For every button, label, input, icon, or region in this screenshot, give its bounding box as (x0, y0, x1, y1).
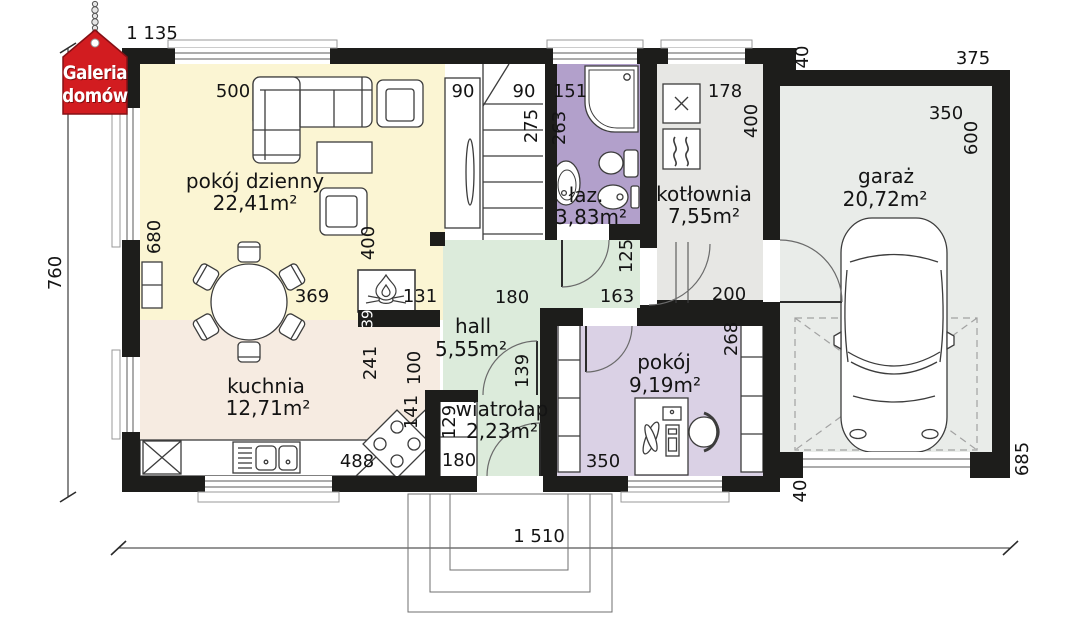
washer-unit (663, 84, 700, 123)
room-name-hall: hall (455, 316, 491, 336)
dim-bedroom-height: 268 (723, 322, 741, 356)
entrance-door-gap (477, 476, 543, 492)
logo-hole (91, 39, 99, 47)
room-name-kitchen: kuchnia (227, 376, 305, 396)
bedroom-door-gap (583, 308, 637, 326)
dim-living-left: 680 (146, 220, 164, 254)
desk (635, 398, 688, 475)
dim-counter: 488 (340, 453, 374, 471)
boiler-unit (663, 129, 700, 169)
logo-line2: domów (62, 85, 128, 107)
coffee-table (317, 142, 372, 173)
dim-left-total: 760 (47, 256, 65, 290)
wall-bath-right (640, 48, 657, 252)
dim-kitchen-passage: 100 (406, 351, 424, 385)
dim-closet-width: 90 (452, 83, 475, 101)
shower (585, 66, 638, 132)
dim-living-right: 400 (360, 226, 378, 260)
dim-boiler-passage: 200 (712, 286, 746, 304)
floor-plan-canvas: Galeria domów pokój dzienny 22,41m² kuch… (0, 0, 1079, 642)
dim-hall-opening: 180 (495, 289, 529, 307)
fridge-icon (143, 441, 181, 474)
dim-kitchen-height: 241 (362, 346, 380, 380)
dim-vest-closet-depth: 129 (441, 405, 459, 439)
side-cabinet (142, 262, 162, 308)
dim-garage-wall-top: 40 (794, 46, 812, 69)
room-name-boiler: kotłownia (656, 184, 752, 204)
bedroom-wardrobe-left (558, 322, 580, 472)
dim-fireplace: 131 (403, 288, 437, 306)
room-area-kitchen: 12,71m² (226, 398, 311, 418)
dim-vest-closet-width: 180 (442, 452, 476, 470)
armchair-top (377, 80, 423, 127)
room-area-bathroom: 3,83m² (555, 207, 627, 227)
dim-garage-wall-bottom: 40 (792, 480, 810, 503)
garage-door-gap (763, 240, 780, 302)
room-name-vestibule: wiatrołap (456, 399, 549, 419)
dim-boiler-width: 178 (708, 83, 742, 101)
room-area-garage: 20,72m² (843, 189, 928, 209)
wall-hall-stub (430, 232, 445, 246)
room-name-living: pokój dzienny (186, 171, 324, 191)
logo-line1: Galeria (63, 62, 127, 84)
room-name-bathroom: łaz. (569, 185, 604, 205)
room-area-living: 22,41m² (213, 193, 298, 213)
bedroom-wardrobe-right (741, 318, 763, 472)
dim-stairs-depth: 275 (523, 109, 541, 143)
wall-bedroom-top (540, 308, 780, 326)
dim-bedroom-width: 350 (586, 453, 620, 471)
dim-top-left-width: 1 135 (126, 25, 178, 43)
dim-bath-width: 151 (553, 83, 587, 101)
dining-table (211, 264, 287, 340)
dim-boiler-height: 400 (743, 104, 761, 138)
dim-sofa-wall: 500 (216, 83, 250, 101)
room-name-bedroom: pokój (637, 352, 691, 372)
dim-garage-inner-width: 350 (929, 105, 963, 123)
wall-right (992, 70, 1010, 478)
room-name-garage: garaż (858, 166, 914, 186)
room-area-boiler: 7,55m² (668, 206, 740, 226)
dim-bottom-total: 1 510 (513, 528, 565, 546)
dim-table: 369 (295, 288, 329, 306)
wall-garage-top (763, 70, 1010, 86)
dim-fireplace-wall: 39 (361, 309, 376, 328)
room-area-hall: 5,55m² (435, 339, 507, 359)
garage-gate-opening (803, 452, 970, 478)
dim-garage-inner-height: 600 (963, 121, 981, 155)
boiler-door-gap (640, 248, 657, 305)
dim-hall-width: 163 (600, 288, 634, 306)
dim-hob: 141 (403, 395, 421, 429)
dim-hall-right: 125 (618, 239, 636, 273)
wall-kitchen-vestibule (425, 402, 440, 492)
entrance-steps (408, 494, 612, 612)
dim-garage-right-height: 685 (1014, 442, 1032, 476)
car (834, 218, 954, 452)
dim-bath-height: 263 (551, 111, 569, 145)
dim-stairs-width: 90 (513, 83, 536, 101)
kitchen-sink (233, 442, 300, 473)
dim-garage-top-width: 375 (956, 50, 990, 68)
room-area-bedroom: 9,19m² (629, 375, 701, 395)
room-area-vestibule: 2,23m² (466, 421, 538, 441)
dim-hall-door: 139 (514, 354, 532, 388)
